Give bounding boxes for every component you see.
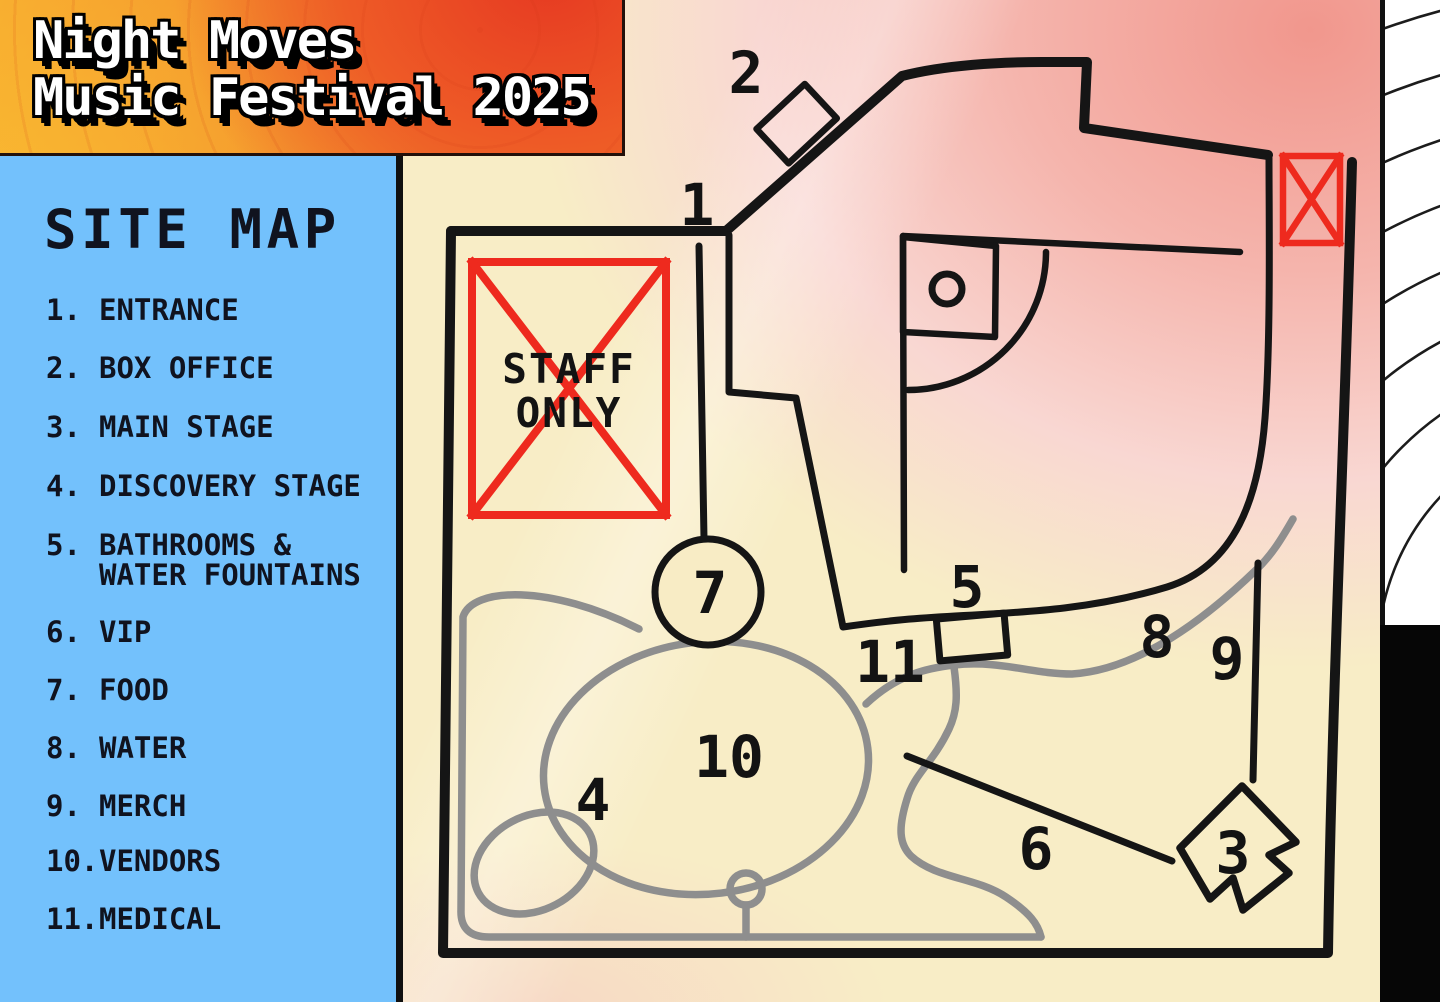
legend-item-number: 4. bbox=[46, 471, 81, 501]
marker-medical: 11 bbox=[855, 633, 925, 691]
legend-item-number: 10. bbox=[46, 846, 98, 876]
marker-discovery-stage: 4 bbox=[576, 771, 611, 829]
staff-only-label: STAFF ONLY bbox=[502, 347, 635, 435]
legend-item-label: BOX OFFICE bbox=[99, 353, 274, 383]
stage-structure-dot bbox=[932, 274, 962, 304]
marker-entrance: 1 bbox=[680, 176, 715, 234]
marker-main-stage: 3 bbox=[1216, 824, 1251, 882]
festival-title-banner: Night Moves Music Festival 2025 bbox=[0, 0, 625, 156]
legend-item-label: MERCH bbox=[99, 791, 186, 821]
entrance-path-line bbox=[699, 246, 704, 539]
box-office-diamond bbox=[756, 84, 836, 163]
legend-item-number: 3. bbox=[46, 412, 81, 442]
marker-vip: 6 bbox=[1019, 820, 1054, 878]
stage-structure-square bbox=[903, 237, 996, 337]
closed-gate-x bbox=[1283, 156, 1340, 243]
marker-vendors: 10 bbox=[694, 728, 764, 786]
legend-item-label: FOOD bbox=[99, 675, 169, 705]
marker-box-office: 2 bbox=[729, 44, 764, 102]
legend-item-label: MAIN STAGE bbox=[99, 412, 274, 442]
arc-pattern-panel bbox=[1380, 0, 1440, 625]
festival-title-line2: Music Festival 2025 bbox=[33, 70, 590, 127]
legend-title: SITE MAP bbox=[44, 198, 341, 261]
legend-item-number: 2. bbox=[46, 353, 81, 383]
festival-site-map-poster: 1 2 3 4 5 6 7 8 9 10 11 STAFF ONLY Night… bbox=[0, 0, 1440, 1002]
legend-sidebar: SITE MAP 1. ENTRANCE 2. BOX OFFICE 3. MA… bbox=[0, 156, 403, 1002]
legend-item-label: BATHROOMS & WATER FOUNTAINS bbox=[99, 530, 361, 590]
backstage-boundary-path bbox=[729, 158, 1269, 627]
black-column bbox=[1380, 625, 1440, 1002]
marker-food: 7 bbox=[693, 564, 728, 622]
merch-drop-line bbox=[1253, 563, 1258, 780]
marker-bathrooms: 5 bbox=[950, 558, 985, 616]
legend-item-number: 6. bbox=[46, 617, 81, 647]
legend-item-number: 9. bbox=[46, 791, 81, 821]
legend-item-label: ENTRANCE bbox=[99, 295, 239, 325]
legend-item-label: MEDICAL bbox=[99, 904, 221, 934]
legend-item-label: VIP bbox=[99, 617, 151, 647]
legend-item-label: WATER bbox=[99, 733, 186, 763]
festival-title: Night Moves Music Festival 2025 bbox=[33, 13, 590, 127]
stage-structure-arc bbox=[908, 252, 1046, 390]
legend-item-number: 7. bbox=[46, 675, 81, 705]
concentric-arcs bbox=[1385, 0, 1440, 625]
legend-item-label: VENDORS bbox=[99, 846, 221, 876]
legend-item-label: DISCOVERY STAGE bbox=[99, 471, 361, 501]
legend-item-number: 5. bbox=[46, 530, 81, 560]
marker-merch: 9 bbox=[1210, 630, 1245, 688]
legend-item-number: 11. bbox=[46, 904, 98, 934]
legend-item-number: 1. bbox=[46, 295, 81, 325]
marker-water: 8 bbox=[1140, 608, 1175, 666]
festival-title-line1: Night Moves bbox=[33, 13, 590, 70]
legend-item-number: 8. bbox=[46, 733, 81, 763]
